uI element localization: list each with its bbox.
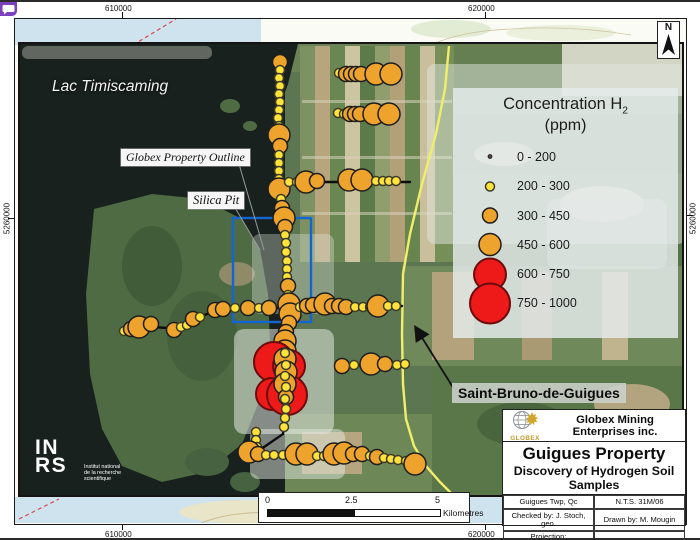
cell-projection: Projection: UTM NAD83 Zone 17 [503,531,594,540]
sample-point [281,414,290,423]
legend-row-label: 0 - 200 [517,150,556,164]
sample-point [404,453,426,475]
north-needle-icon [660,33,677,57]
inrs-line2: RS [35,457,67,475]
north-arrow: N [657,21,680,59]
sample-point [282,239,291,248]
scale-bar-graphic [267,509,441,517]
coord-bottom-right: 620000 [468,530,495,539]
legend-unit: (ppm) [453,117,678,135]
scale-0: 0 [265,495,270,505]
legend-row-label: 750 - 1000 [517,296,577,310]
sample-point [231,304,240,313]
legend-row: 300 - 450 [453,201,678,230]
company-name: Globex Mining Enterprises inc. [547,414,685,438]
legend: Concentration H2 (ppm) 0 - 200200 - 3003… [453,88,678,338]
globex-logo: GLOBEX [503,410,547,442]
sample-point [335,359,350,374]
chat-bubble-icon[interactable] [0,2,17,16]
sample-point [262,301,277,316]
legend-row: 450 - 600 [453,230,678,259]
sample-point [281,372,290,381]
sample-point [282,248,291,257]
cell-date: Date: 2024-09-05 [594,531,685,540]
legend-title: Concentration H2 [453,95,678,116]
sample-point [401,360,410,369]
legend-row-label: 600 - 750 [517,267,570,281]
coord-bottom-left: 610000 [105,530,132,539]
sample-point [282,383,291,392]
inrs-logo: IN RS Institut national de la recherche … [35,439,67,475]
coord-top-left: 610000 [105,4,132,13]
inrs-tagline: Institut national de la recherche scient… [84,464,121,482]
cell-nts: N.T.S. 31M/06 [594,495,685,509]
sample-point [392,302,401,311]
legend-row: 0 - 200 [453,142,678,171]
legend-rows: 0 - 200200 - 300300 - 450450 - 600600 - … [453,142,678,318]
legend-row: 200 - 300 [453,172,678,201]
sample-point [280,423,289,432]
title-block-table: Guigues Twp, Qc N.T.S. 31M/06 Checked by… [503,494,685,540]
sample-point [281,349,290,358]
map-subtitle: Discovery of Hydrogen Soil Samples [503,464,685,492]
legend-row: 750 - 1000 [453,289,678,318]
scale-bar-filled [268,510,354,516]
property-outline-label: Globex Property Outline [121,149,250,166]
sample-point [380,63,402,85]
sample-point [378,103,400,125]
town-label: Saint-Bruno-de-Guigues [452,383,626,403]
map-title: Guigues Property [503,444,685,464]
sample-point [196,313,205,322]
north-label: N [658,22,679,33]
sample-point [282,405,291,414]
sample-point [241,301,256,316]
legend-row-label: 300 - 450 [517,209,570,223]
sample-point [282,361,291,370]
cell-drawn: Drawn by: M. Mougin [594,509,685,531]
globex-logo-text: GLOBEX [503,435,547,442]
sample-point [281,395,290,404]
sample-point [351,169,373,191]
globe-leaf-icon [510,410,540,432]
scale-bar: 0 2.5 5 Kilometres [258,492,470,523]
legend-row-label: 200 - 300 [517,179,570,193]
silica-pit-label: Silica Pit [188,192,244,209]
scale-unit: Kilometres [443,508,484,518]
scale-5: 5 [435,495,440,505]
legend-title-sub: 2 [622,105,628,116]
sample-point [378,357,393,372]
lake-label: Lac Timiscaming [52,78,168,96]
legend-row-label: 450 - 600 [517,238,570,252]
coord-right: 5260000 [689,198,698,240]
sample-point [392,177,401,186]
title-block: GLOBEX Globex Mining Enterprises inc. Gu… [502,409,686,526]
map-sheet: 610000 620000 610000 620000 5260000 5260… [0,0,700,540]
coord-top-right: 620000 [468,4,495,13]
sample-point [144,317,159,332]
cell-township: Guigues Twp, Qc [503,495,594,509]
cell-checked: Checked by: J. Stoch, geo. [503,509,594,531]
sample-point [310,174,325,189]
tick [687,215,693,216]
sample-point [216,302,231,317]
scale-25: 2.5 [345,495,358,505]
scale-bar-empty [354,510,440,516]
sample-point [350,361,359,370]
sample-point [270,451,279,460]
